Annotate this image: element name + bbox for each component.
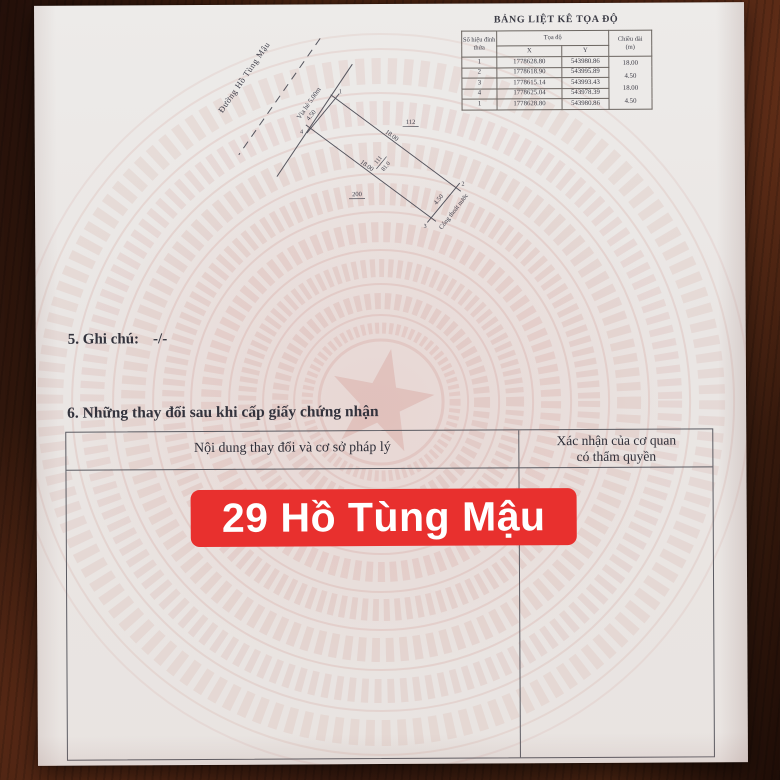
vertex-label-3: 3	[424, 224, 427, 230]
changes-col-confirm-line1: Xác nhận của cơ quan	[518, 432, 714, 449]
coord-cell-x: 1778628.80	[497, 99, 562, 110]
certificate-page: Đường Hồ Tùng Mậu Vỉa hè 5.00m Cống thoá…	[34, 2, 748, 766]
coord-header-x: X	[497, 46, 562, 57]
coord-cell-y: 543980.86	[562, 98, 609, 109]
side-edge-length-top: 18.00	[384, 129, 400, 143]
coord-cell-id: 2	[462, 67, 497, 78]
sidewalk-edge-line	[276, 64, 353, 176]
coordinate-table: Số hiệu đỉnh thửa Tọa độ Chiều dài (m) X…	[461, 30, 652, 110]
length-value: 4.50	[610, 97, 652, 105]
coord-cell-id: 1	[462, 57, 497, 68]
neighbor-parcel-right: 112	[406, 119, 416, 126]
coord-lengths-cell: 18.00 4.50 18.00 4.50	[609, 56, 652, 109]
changes-col-content-header: Nội dung thay đổi và cơ sở pháp lý	[66, 439, 518, 457]
coord-cell-x: 1778628.80	[497, 57, 562, 68]
vertex-label-4: 4	[300, 129, 303, 135]
coord-cell-id: 4	[462, 88, 497, 99]
coord-cell-x: 1778618.90	[497, 67, 562, 78]
parcel-area: 81.0	[381, 161, 392, 173]
coord-header-length: Chiều dài (m)	[609, 30, 652, 56]
coord-cell-x: 1778615.14	[497, 78, 562, 89]
back-edge-length: 4.50	[433, 193, 446, 206]
coord-header-coords: Tọa độ	[497, 30, 609, 46]
length-value: 4.50	[609, 72, 651, 80]
length-value: 18.00	[609, 60, 651, 68]
parcel-number-area: 111 81.0	[371, 152, 394, 175]
coord-cell-y: 543995.89	[562, 67, 609, 78]
parcel-number: 111	[374, 155, 384, 165]
vertex-label-1: 1	[339, 89, 342, 95]
street-name-label: Đường Hồ Tùng Mậu	[216, 40, 272, 115]
neighbor-parcel-left: 200	[352, 191, 362, 198]
note-value: -/-	[153, 331, 167, 347]
note-section: 5. Ghi chú:-/-	[68, 331, 168, 349]
note-label: 5. Ghi chú:	[68, 331, 139, 347]
coord-header-vertex: Số hiệu đỉnh thửa	[462, 31, 497, 57]
coord-row: 1 1778628.80 543980.86 18.00 4.50 18.00 …	[462, 56, 652, 67]
photo-of-land-certificate: { "banner": { "text": "29 Hồ Tùng Mậu" }…	[0, 0, 780, 780]
side-edge-length-bottom: 18.00	[359, 159, 375, 173]
coord-cell-id: 3	[462, 78, 497, 89]
coord-cell-y: 543978.39	[562, 88, 609, 99]
vertex-label-2: 2	[461, 182, 464, 188]
coord-header-y: Y	[562, 45, 609, 56]
coord-cell-x: 1778625.04	[497, 88, 562, 99]
length-value: 18.00	[609, 85, 651, 93]
coord-cell-id: 1	[462, 99, 497, 110]
coordinate-table-title: BẢNG LIỆT KÊ TỌA ĐỘ	[461, 14, 651, 26]
coord-cell-y: 543993.43	[562, 77, 609, 88]
changes-table: Nội dung thay đổi và cơ sở pháp lý Xác n…	[65, 428, 715, 760]
address-banner: 29 Hồ Tùng Mậu	[191, 488, 577, 547]
changes-table-divider	[518, 430, 521, 757]
coord-cell-y: 543980.86	[562, 56, 609, 67]
road-edge-line	[238, 38, 321, 154]
changes-section-heading: 6. Những thay đổi sau khi cấp giấy chứng…	[67, 403, 379, 423]
changes-col-confirm-line2: có thẩm quyền	[518, 448, 714, 465]
changes-table-header-line	[66, 466, 712, 471]
coord-header-length-line2: (m)	[609, 43, 651, 51]
changes-col-confirm-header: Xác nhận của cơ quan có thẩm quyền	[518, 432, 714, 465]
